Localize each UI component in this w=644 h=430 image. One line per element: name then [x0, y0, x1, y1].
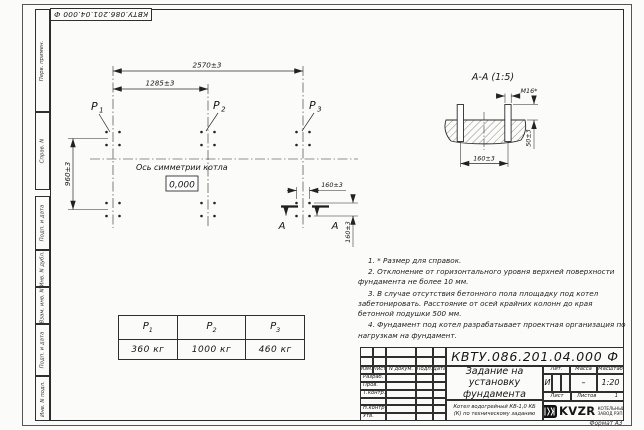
p1-leader	[99, 114, 110, 132]
change-cell	[416, 347, 433, 357]
sig-cell	[416, 413, 433, 421]
change-cell	[433, 357, 446, 367]
sig-cell	[386, 413, 416, 421]
note-4: 4. Фундамент под котел разрабатывает про…	[358, 320, 626, 340]
company-desc: КОТЕЛЬНЫЙ ЗАВОД РЭП	[598, 406, 624, 417]
sig-cell	[416, 374, 433, 382]
designation-text: КВТУ.086.201.04.000 Ф	[451, 350, 619, 364]
change-cell	[386, 347, 416, 357]
change-cell	[373, 357, 386, 367]
scale-header: Масштаб	[597, 366, 624, 374]
load-table-header-p2: P2	[177, 316, 246, 340]
company-name: KVZR	[559, 405, 596, 418]
dim-2570-label: 2570±3	[193, 61, 222, 70]
axis-label: Ось симметрии котла	[136, 163, 228, 172]
row-tkontr: Т.контр.	[360, 390, 386, 398]
sheets-cell: Листов 1	[571, 392, 624, 401]
sig-cell	[386, 398, 416, 405]
change-cell	[433, 347, 446, 357]
title-block: Изм. Лист N докум. Подп. Дата Разраб. Пр…	[360, 347, 624, 421]
p1-label: P1	[91, 100, 104, 115]
load-table-header-row: P1 P2 P3	[119, 316, 305, 340]
doc-title-cell: Задание на установку фундамента	[446, 366, 543, 400]
p3-leader	[302, 113, 314, 131]
technical-notes: 1. * Размер для справок. 2. Отклонение о…	[358, 256, 626, 342]
dim-1285-label: 1285±3	[146, 79, 175, 88]
sig-cell	[433, 398, 446, 405]
col-ndokum: N докум.	[386, 366, 416, 374]
sig-cell	[386, 405, 416, 413]
row-nkontr: Н.контр.	[360, 405, 386, 413]
load-table-header-p3: P3	[246, 316, 305, 340]
change-cell	[360, 347, 373, 357]
doc-subtitle-text: Котел водогрейный КВ-1,0 КБ (К) по техни…	[449, 404, 540, 417]
col-list: Лист	[373, 366, 386, 374]
row-prov: Пров.	[360, 382, 386, 390]
anchor-bolt-right	[505, 105, 511, 142]
load-table: P1 P2 P3 360 кг 1000 кг 460 кг	[118, 315, 305, 360]
sig-cell	[416, 382, 433, 390]
mass-value-cell: –	[570, 374, 597, 392]
sig-cell	[386, 390, 416, 398]
sheet-cell: Лист	[543, 392, 571, 401]
company-cell: KVZR КОТЕЛЬНЫЙ ЗАВОД РЭП	[543, 401, 624, 421]
dim-160v-label: 160±3	[344, 221, 352, 243]
row-utv: Утв.	[360, 413, 386, 421]
sig-cell	[386, 382, 416, 390]
sig-cell	[416, 398, 433, 405]
col-podp: Подп.	[416, 366, 433, 374]
lit-header: Лит.	[543, 366, 570, 374]
load-value-p1: 360 кг	[119, 340, 178, 360]
scale-value-cell: 1:20	[597, 374, 624, 392]
anchor-bolt-left	[457, 105, 463, 142]
sig-cell	[433, 390, 446, 398]
section-letter-left: А	[278, 221, 286, 232]
sig-cell	[416, 405, 433, 413]
elevation-value: 0,000	[169, 181, 195, 191]
load-value-p2: 1000 кг	[177, 340, 246, 360]
sig-cell	[433, 405, 446, 413]
change-cell	[360, 357, 373, 367]
dim-960-label: 960±3	[63, 161, 72, 186]
doc-title-text: Задание на установку фундамента	[455, 366, 534, 400]
doc-subtitle-cell: Котел водогрейный КВ-1,0 КБ (К) по техни…	[446, 400, 543, 421]
note-1: 1. * Размер для справок.	[358, 256, 626, 266]
sig-cell	[433, 374, 446, 382]
sig-cell	[416, 390, 433, 398]
plan-view: 2570±3 1285±3 960±3 P1 P2 P3 Ось симметр…	[63, 61, 358, 248]
sig-cell	[433, 413, 446, 421]
thread-label: М16*	[521, 87, 538, 95]
col-izm: Изм.	[360, 366, 373, 374]
load-value-p3: 460 кг	[246, 340, 305, 360]
format-note: Формат А3	[583, 421, 629, 427]
kvzr-logo-icon	[543, 405, 557, 418]
section-title: А-А (1:5)	[471, 72, 514, 83]
change-cell	[416, 357, 433, 367]
p3-label: P3	[309, 99, 322, 114]
sheets-label: Листов	[577, 394, 596, 400]
lit-cell-2	[552, 374, 561, 392]
sig-cell	[433, 382, 446, 390]
sheets-value: 1	[615, 394, 618, 400]
company-logo: KVZR КОТЕЛЬНЫЙ ЗАВОД РЭП	[543, 405, 624, 418]
change-cell	[373, 347, 386, 357]
designation-cell: КВТУ.086.201.04.000 Ф	[446, 347, 624, 366]
row-razrab: Разраб.	[360, 374, 386, 382]
change-cell	[386, 357, 416, 367]
note-2: 2. Отклонение от горизонтального уровня …	[358, 267, 626, 287]
lit-cell-3	[561, 374, 570, 392]
row-empty	[360, 398, 386, 405]
col-data: Дата	[433, 366, 446, 374]
note-3: 3. В случае отсутствия бетонного пола пл…	[358, 289, 626, 320]
p2-label: P2	[213, 99, 226, 114]
dim-160h-label: 160±3	[321, 181, 343, 189]
section-view: А-А (1:5) М16* 50±3 160±3	[445, 72, 538, 167]
section-letter-right: А	[331, 221, 339, 232]
load-table-value-row: 360 кг 1000 кг 460 кг	[119, 340, 305, 360]
lit-value-cell: И	[543, 374, 552, 392]
sig-cell	[386, 374, 416, 382]
drawing-sheet: { "designation": "КВТУ.086.201.04.000 Ф"…	[0, 0, 644, 430]
mass-header: Масса	[570, 366, 597, 374]
load-table-header-p1: P1	[119, 316, 178, 340]
dim-160s-label: 160±3	[473, 155, 495, 163]
dim-50-label: 50±3	[525, 129, 533, 147]
